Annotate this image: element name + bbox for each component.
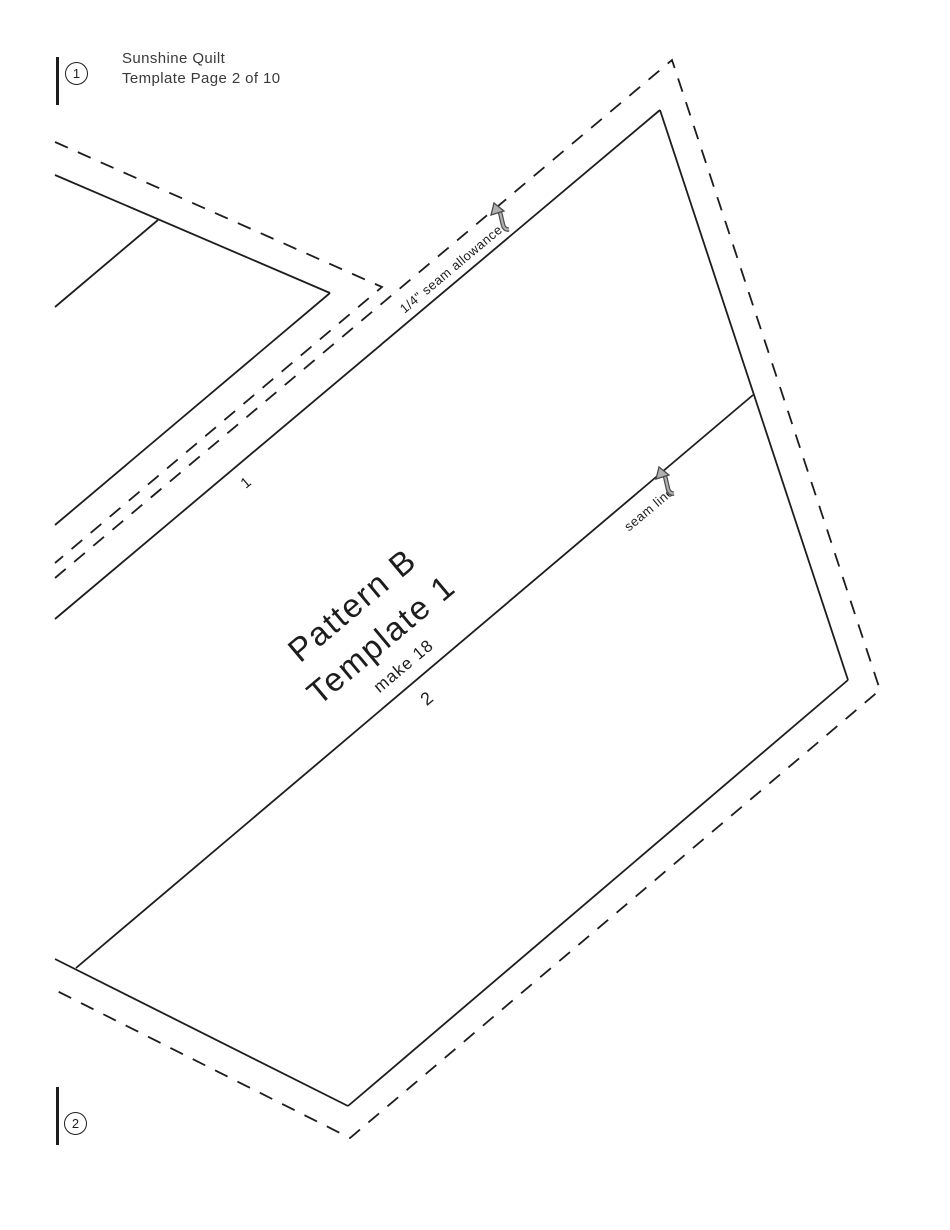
page-header: Sunshine Quilt Template Page 2 of 10 xyxy=(122,49,281,89)
adjacent-piece-seam-line xyxy=(55,220,158,307)
piece-edge-upper-left-seam-1 xyxy=(55,110,660,619)
piece-edge-lower-left xyxy=(55,959,348,1106)
adjacent-piece-cutting-line-dashed xyxy=(55,142,382,563)
adjacent-piece-edge-top xyxy=(55,175,330,293)
piece-interior-seam-line-2 xyxy=(76,395,753,968)
seam-allowance-arrow-icon xyxy=(489,202,513,234)
piece-edge-lower-right xyxy=(348,680,848,1106)
page-number-text: Template Page 2 of 10 xyxy=(122,69,281,89)
piece-edge-upper-right xyxy=(660,110,848,680)
quilt-title: Sunshine Quilt xyxy=(122,49,281,69)
match-mark-bottom-number: 2 xyxy=(72,1116,79,1131)
match-mark-top: 1 xyxy=(65,62,88,85)
match-mark-bar-top xyxy=(56,57,59,105)
seam-line-arrow-icon xyxy=(654,466,678,498)
match-mark-top-number: 1 xyxy=(73,66,80,81)
match-mark-bar-bottom xyxy=(56,1087,59,1145)
adjacent-piece-edge-end xyxy=(55,293,330,525)
piece-cutting-line-dashed xyxy=(55,60,880,1138)
match-mark-bottom: 2 xyxy=(64,1112,87,1135)
quilt-template-page: Sunshine Quilt Template Page 2 of 10 1 2… xyxy=(0,0,950,1230)
